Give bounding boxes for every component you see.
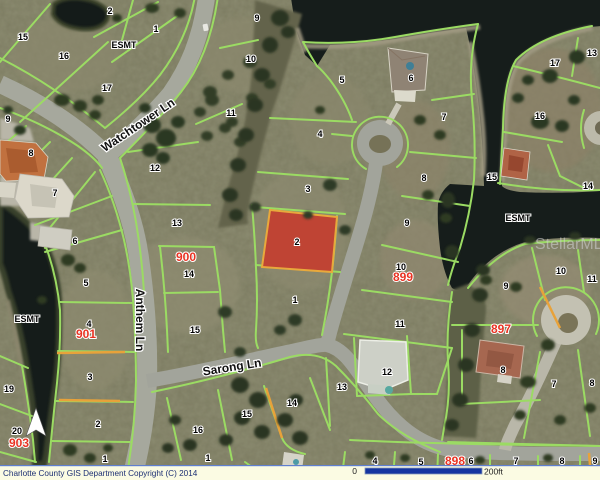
svg-text:9: 9	[5, 114, 10, 124]
svg-text:14: 14	[583, 181, 593, 191]
svg-text:13: 13	[172, 218, 182, 228]
svg-text:1: 1	[153, 24, 158, 34]
svg-text:15: 15	[487, 172, 497, 182]
svg-text:903: 903	[9, 436, 29, 450]
svg-text:11: 11	[226, 108, 236, 118]
svg-text:900: 900	[176, 250, 196, 264]
svg-text:StellarML: StellarML	[535, 236, 600, 253]
svg-text:5: 5	[83, 278, 88, 288]
svg-text:7: 7	[441, 112, 446, 122]
svg-text:6: 6	[72, 236, 77, 246]
svg-text:7: 7	[513, 456, 518, 466]
svg-text:2: 2	[95, 419, 100, 429]
svg-text:11: 11	[395, 319, 405, 329]
svg-text:17: 17	[550, 58, 560, 68]
svg-text:8: 8	[589, 378, 594, 388]
svg-text:ESMT: ESMT	[505, 213, 531, 223]
svg-text:7: 7	[551, 379, 556, 389]
svg-text:Charlotte County GIS Departmen: Charlotte County GIS Department Copyrigh…	[3, 469, 198, 478]
svg-text:14: 14	[287, 398, 297, 408]
svg-text:9: 9	[254, 13, 259, 23]
svg-text:15: 15	[18, 32, 28, 42]
svg-text:200ft: 200ft	[484, 467, 504, 477]
svg-text:7: 7	[52, 188, 57, 198]
svg-text:16: 16	[59, 51, 69, 61]
svg-text:1: 1	[292, 295, 297, 305]
svg-text:12: 12	[382, 367, 392, 377]
svg-text:8: 8	[421, 173, 426, 183]
svg-text:3: 3	[305, 184, 310, 194]
svg-text:0: 0	[352, 466, 357, 476]
svg-text:12: 12	[150, 163, 160, 173]
svg-text:2: 2	[294, 237, 299, 247]
svg-text:13: 13	[587, 48, 597, 58]
svg-text:13: 13	[337, 382, 347, 392]
svg-text:8: 8	[28, 148, 33, 158]
svg-text:899: 899	[393, 270, 413, 284]
svg-text:6: 6	[468, 456, 473, 466]
svg-text:1: 1	[205, 453, 210, 463]
svg-text:9: 9	[503, 281, 508, 291]
svg-text:20: 20	[12, 426, 22, 436]
svg-text:15: 15	[242, 409, 252, 419]
svg-text:9: 9	[404, 218, 409, 228]
svg-text:897: 897	[491, 322, 511, 336]
svg-text:ESMT: ESMT	[111, 40, 137, 50]
svg-text:3: 3	[87, 372, 92, 382]
svg-text:ESMT: ESMT	[14, 314, 40, 324]
svg-text:10: 10	[556, 266, 566, 276]
svg-text:901: 901	[76, 327, 96, 341]
svg-text:8: 8	[559, 456, 564, 466]
svg-text:1: 1	[102, 454, 107, 464]
svg-text:5: 5	[339, 75, 344, 85]
svg-text:15: 15	[190, 325, 200, 335]
svg-text:9: 9	[592, 456, 597, 466]
svg-text:11: 11	[587, 274, 597, 284]
svg-text:14: 14	[184, 269, 194, 279]
svg-text:16: 16	[193, 425, 203, 435]
svg-text:6: 6	[408, 73, 413, 83]
svg-text:19: 19	[4, 384, 14, 394]
svg-text:16: 16	[535, 111, 545, 121]
svg-text:2: 2	[107, 6, 112, 16]
svg-text:8: 8	[500, 365, 505, 375]
svg-text:10: 10	[246, 54, 256, 64]
svg-text:17: 17	[102, 83, 112, 93]
svg-text:4: 4	[372, 456, 377, 466]
svg-text:4: 4	[317, 129, 322, 139]
svg-text:Anthem Ln: Anthem Ln	[133, 289, 147, 352]
